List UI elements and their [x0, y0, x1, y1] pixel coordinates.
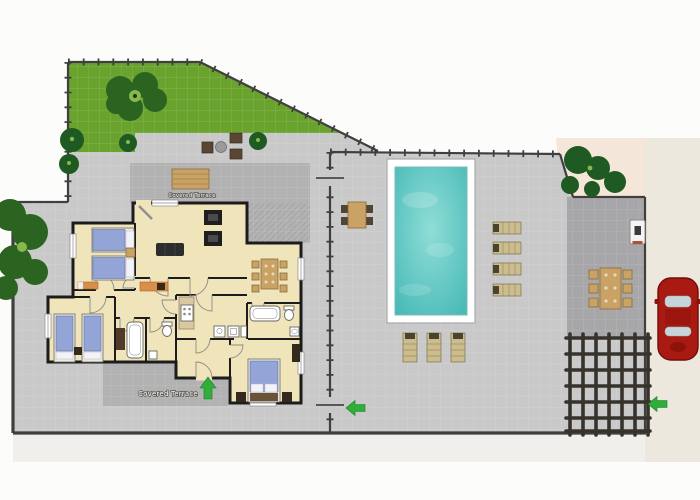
dresser	[292, 344, 300, 362]
floor-plan-page: Covered Terrace Covered Terrace	[0, 0, 700, 500]
living-door-gap	[136, 200, 151, 206]
floor-plan-canvas: Covered Terrace Covered Terrace	[0, 0, 700, 500]
nightstand	[126, 248, 135, 257]
trunk-detail	[670, 342, 686, 352]
wc-toilet	[163, 326, 172, 337]
mirror-right	[697, 299, 700, 304]
sink-unit	[214, 326, 225, 337]
red-car	[655, 278, 700, 360]
covered-terrace-label-top: Covered Terrace	[168, 193, 216, 199]
nightstand-right	[282, 392, 292, 402]
hall-bench	[140, 282, 168, 291]
bedside-table	[74, 347, 82, 355]
nightstand-left	[236, 392, 246, 402]
street-area	[655, 278, 700, 360]
rear-window	[665, 327, 691, 336]
driveway-dining-table	[589, 268, 632, 309]
bath-cabinet	[116, 328, 125, 350]
headboard	[250, 393, 278, 401]
toilet	[285, 310, 294, 321]
washbasin	[290, 327, 299, 336]
sofa	[156, 243, 184, 256]
media-front	[208, 235, 218, 242]
covered-terrace-label-bottom: Covered Terrace	[138, 390, 198, 398]
sun-loungers-south	[403, 333, 465, 362]
cabinet	[241, 326, 247, 337]
mirror-left	[655, 299, 660, 304]
dining-table	[261, 259, 278, 289]
tv-screen	[208, 214, 218, 221]
utility-box	[630, 220, 645, 244]
car-roof	[665, 309, 691, 325]
street-strip	[13, 433, 700, 462]
hob	[181, 305, 193, 321]
garden-bench	[172, 169, 209, 189]
round-side-table	[216, 142, 227, 153]
windshield	[665, 296, 691, 307]
dishwasher	[228, 326, 239, 337]
dining-area-furniture	[252, 259, 287, 292]
wc-basin	[149, 351, 157, 359]
